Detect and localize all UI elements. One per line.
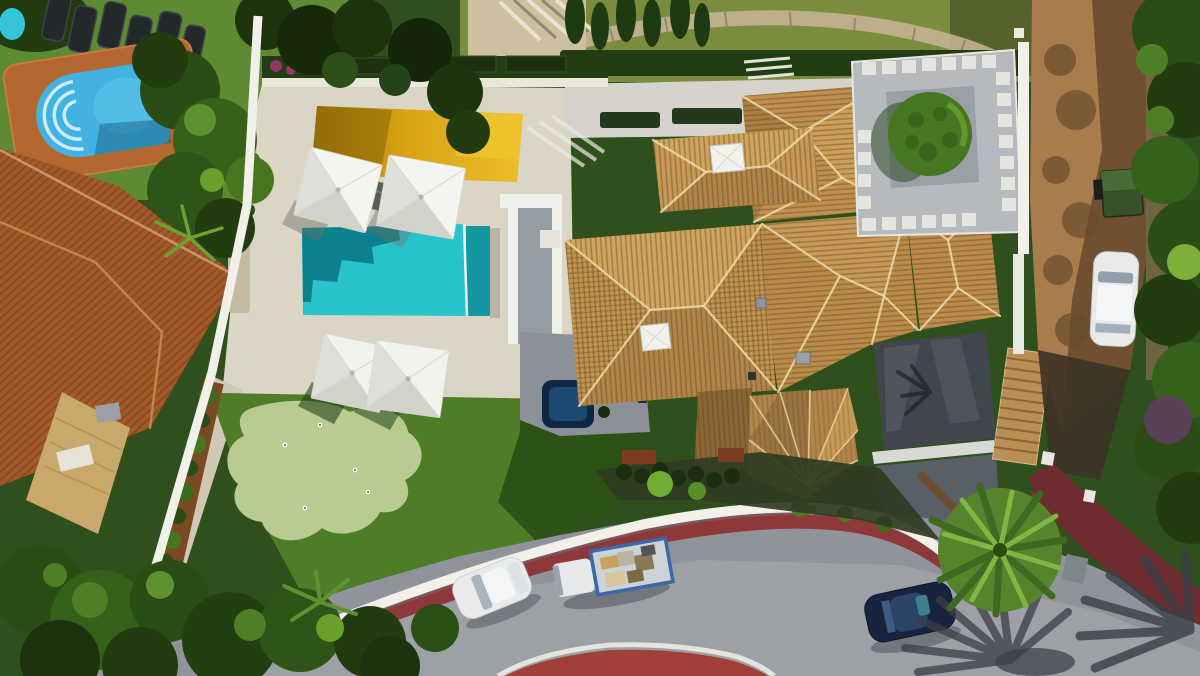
terracotta-planter: [718, 448, 744, 462]
palm-crown: [993, 543, 1007, 557]
roof-main-left: [565, 224, 776, 406]
round-tree: [888, 92, 972, 176]
shadow-blob: [995, 648, 1075, 676]
pergola-beam: [500, 194, 562, 208]
bougainvillea-tree: [1144, 396, 1192, 444]
day-bed: [540, 230, 560, 248]
white-wall-strip: [552, 196, 562, 344]
skylight: [710, 143, 745, 173]
pool-coping: [490, 228, 500, 318]
clipped-bush: [688, 482, 706, 500]
gate-post: [1083, 489, 1096, 503]
parasol: [376, 155, 465, 239]
roof-pavilion: [653, 128, 820, 212]
poolside-structure: [500, 194, 562, 344]
parked-white-suv: [1090, 251, 1140, 347]
boundary-wall-right: [1018, 42, 1029, 254]
pool-spa-edge: [466, 226, 490, 316]
boundary-wall-right-lower: [1013, 254, 1024, 354]
clipped-bush: [647, 471, 673, 497]
windshield: [1098, 271, 1134, 284]
skylight: [640, 323, 671, 351]
aerial-photo-svg: Aerial drone view of a modern Mediterran…: [0, 0, 1200, 676]
white-wall-strip: [508, 196, 518, 344]
wall-post: [1014, 28, 1024, 38]
car-roof: [1096, 284, 1133, 322]
gate-post: [1041, 451, 1055, 466]
parasol: [367, 340, 450, 418]
aerial-photo: Aerial drone view of a modern Mediterran…: [0, 0, 1200, 676]
pool-toy: [0, 8, 25, 40]
rear-window: [1095, 323, 1130, 334]
terracotta-planter: [622, 450, 656, 464]
